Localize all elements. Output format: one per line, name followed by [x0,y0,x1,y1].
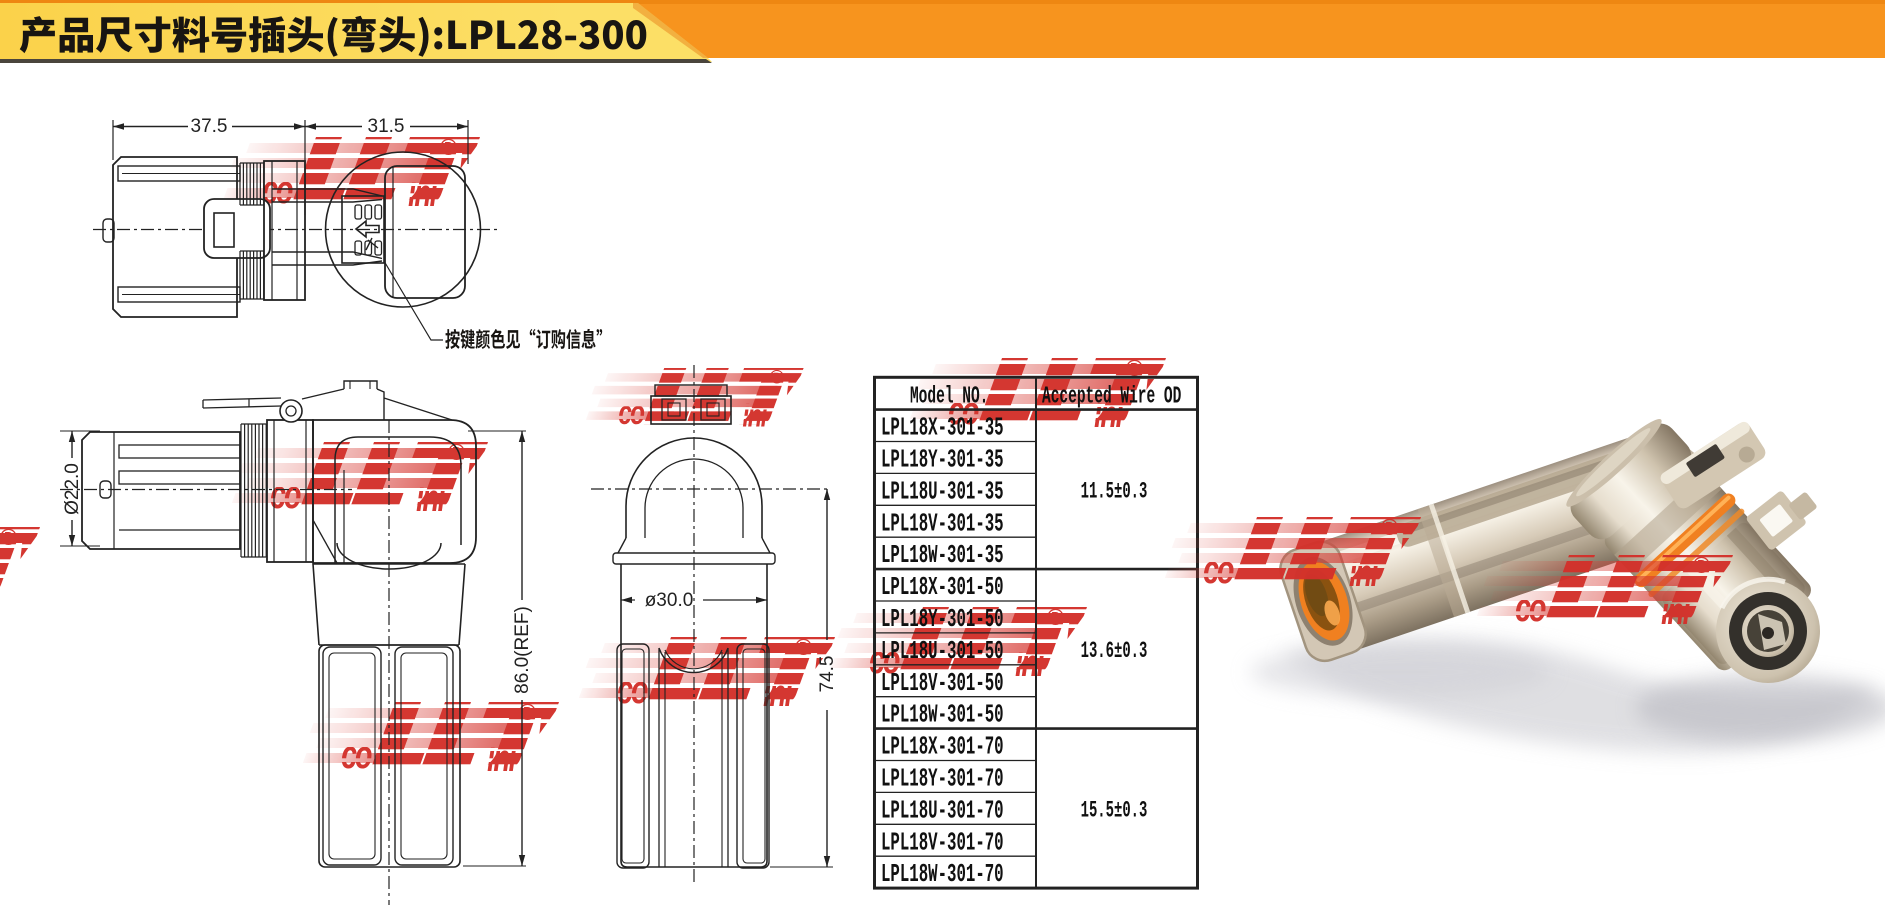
svg-text:LPL18V-301-35: LPL18V-301-35 [881,510,1004,539]
svg-text:11.5±0.3: 11.5±0.3 [1081,478,1148,505]
svg-text:37.5: 37.5 [191,116,228,137]
svg-text:LPL18U-301-35: LPL18U-301-35 [881,478,1004,507]
svg-text:13.6±0.3: 13.6±0.3 [1081,637,1148,664]
svg-text:LPL18X-301-35: LPL18X-301-35 [881,414,1004,443]
svg-text:LPL18V-301-50: LPL18V-301-50 [881,669,1004,698]
svg-text:Model NO.: Model NO. [910,382,988,410]
svg-text:Accepted Wire OD: Accepted Wire OD [1042,382,1181,410]
svg-text:LPL18X-301-70: LPL18X-301-70 [881,733,1004,762]
svg-text:ø30.0: ø30.0 [645,590,694,611]
svg-text:31.5: 31.5 [368,116,405,137]
svg-text:74.5: 74.5 [817,656,838,693]
svg-text:LPL18U-301-70: LPL18U-301-70 [881,797,1004,826]
svg-text:15.5±0.3: 15.5±0.3 [1081,797,1148,824]
svg-text:LPL18Y-301-70: LPL18Y-301-70 [881,765,1004,794]
svg-text:LPL18Y-301-50: LPL18Y-301-50 [881,605,1004,634]
svg-text:86.0(REF): 86.0(REF) [512,606,533,694]
svg-text:LPL18W-301-50: LPL18W-301-50 [881,701,1004,730]
svg-text:LPL18Y-301-35: LPL18Y-301-35 [881,446,1004,475]
svg-text:LPL18W-301-70: LPL18W-301-70 [881,861,1004,890]
svg-text:LPL18W-301-35: LPL18W-301-35 [881,542,1004,571]
svg-text:LPL18U-301-50: LPL18U-301-50 [881,637,1004,666]
svg-text:LPL18X-301-50: LPL18X-301-50 [881,574,1004,603]
svg-text:LPL18V-301-70: LPL18V-301-70 [881,829,1004,858]
